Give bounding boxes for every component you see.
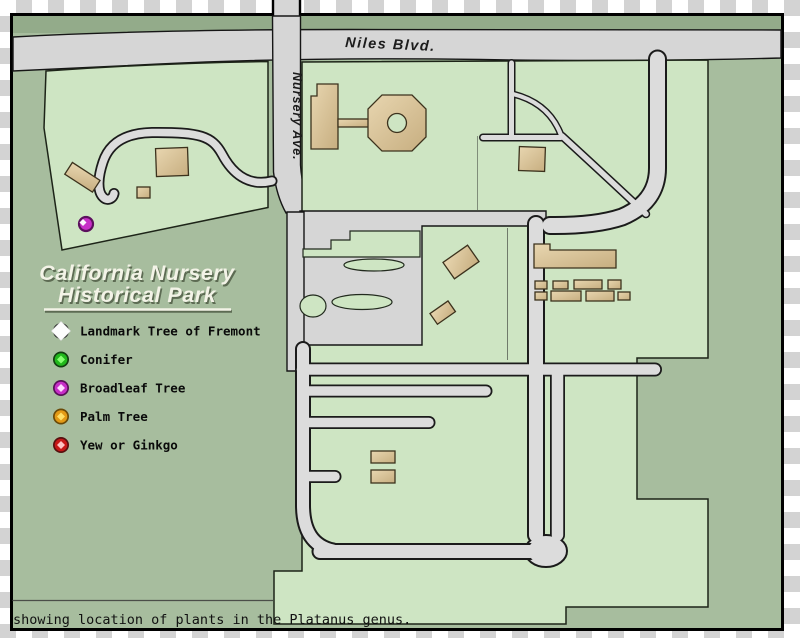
nursery-ave-stub bbox=[273, 0, 300, 17]
shed-building bbox=[535, 281, 547, 289]
legend-label: Yew or Ginkgo bbox=[80, 438, 178, 453]
shed-building bbox=[371, 451, 395, 463]
shed-building bbox=[553, 281, 568, 289]
shed-building bbox=[608, 280, 621, 289]
map-title: California Nursery California Nursery Hi… bbox=[39, 261, 236, 312]
shed-building bbox=[586, 291, 614, 301]
title-line1: California Nursery bbox=[39, 261, 235, 285]
shed-building bbox=[535, 292, 547, 300]
small-building bbox=[137, 187, 150, 198]
broadleaf-tree-marker[interactable] bbox=[79, 217, 93, 231]
planting-bed bbox=[332, 295, 392, 310]
planting-bed bbox=[344, 259, 404, 271]
shed-building bbox=[618, 292, 630, 300]
legend-item-conifer: Conifer bbox=[53, 352, 133, 368]
shed-building bbox=[371, 470, 395, 483]
legend-label: Landmark Tree of Fremont bbox=[80, 324, 261, 339]
legend-label: Conifer bbox=[80, 352, 133, 367]
map-caption: showing location of plants in the Platan… bbox=[13, 612, 411, 628]
shed-building bbox=[574, 280, 602, 289]
legend-item-landmark: Landmark Tree of Fremont bbox=[52, 322, 261, 341]
shed-building bbox=[551, 291, 581, 301]
legend-label: Broadleaf Tree bbox=[80, 381, 186, 396]
park-map: Niles Blvd. Nursery Ave. California Nurs… bbox=[0, 0, 800, 638]
square-building bbox=[519, 147, 546, 172]
title-line2: Historical Park bbox=[58, 283, 217, 307]
planting-bed bbox=[300, 295, 326, 317]
park-map-page: Niles Blvd. Nursery Ave. California Nurs… bbox=[0, 0, 800, 638]
square-building bbox=[156, 147, 189, 176]
nursery-ave-label: Nursery Ave. bbox=[290, 72, 304, 161]
building-connector bbox=[338, 119, 369, 127]
legend-label: Palm Tree bbox=[80, 409, 148, 424]
octagon-courtyard bbox=[388, 114, 407, 133]
